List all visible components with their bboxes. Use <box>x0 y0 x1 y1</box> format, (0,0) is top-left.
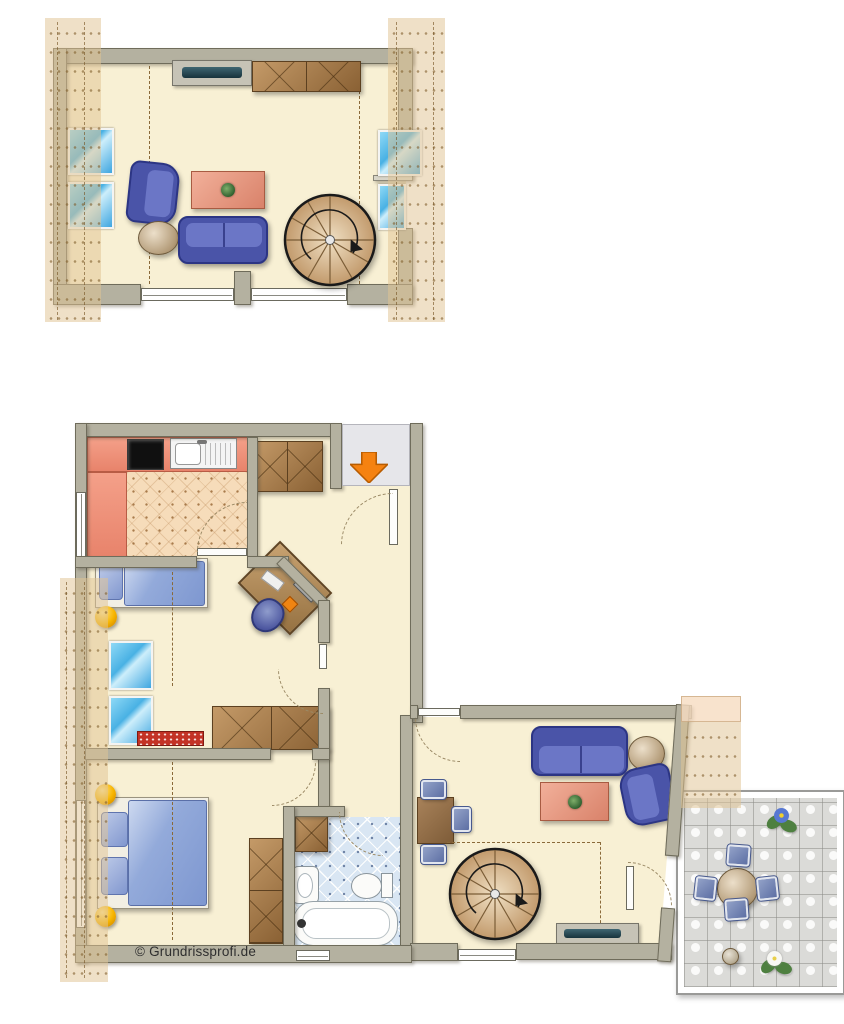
sink-bowl <box>175 443 201 465</box>
cabinet-top <box>296 815 327 851</box>
childrens-door-leaf <box>319 644 327 669</box>
terrace-chair <box>724 898 748 921</box>
seat-cushion <box>626 773 661 821</box>
roof-band-top <box>681 696 741 722</box>
terrace-chair <box>756 876 779 901</box>
wall-segment <box>657 907 675 962</box>
wall-corridor-east <box>400 715 413 955</box>
wall-bedroom-top <box>85 748 271 760</box>
radiator <box>137 731 204 746</box>
living-window-band <box>458 949 516 961</box>
sink-drainer <box>205 443 233 465</box>
kitchen-sink <box>170 438 237 469</box>
blanket <box>128 800 207 906</box>
wall-bath-left <box>283 806 295 956</box>
seat-cushion <box>144 169 175 217</box>
living-door-leaf <box>418 708 460 716</box>
chest-section <box>253 62 307 91</box>
attic-chimney <box>234 271 251 305</box>
wardrobe-section <box>253 442 288 491</box>
wall-living-top-b <box>460 705 692 719</box>
chest-section <box>307 62 360 91</box>
wall-right-outer-upper <box>410 423 423 723</box>
roof-hatch-line <box>396 22 397 320</box>
dining-chair <box>421 845 446 864</box>
toilet-bowl <box>351 873 382 899</box>
spiral-staircase <box>446 845 544 943</box>
terrace-chair <box>726 844 750 867</box>
plant-icon <box>568 795 582 809</box>
skylight-window <box>109 641 153 690</box>
wall-childrens-right <box>318 600 330 643</box>
round-side-table <box>138 221 179 255</box>
bath-window <box>296 950 330 961</box>
plant-pot <box>722 948 739 965</box>
roof-hatch-line <box>66 582 67 978</box>
watermark: © Grundrissprofi.de <box>135 944 256 959</box>
roof-hatch-line <box>433 22 434 320</box>
wall-kitchen-right <box>247 437 258 558</box>
wall-living-bottom-b <box>516 943 672 960</box>
wall-bedroom-top-right <box>312 748 330 760</box>
living-sofa <box>531 726 628 776</box>
roof-hatch-left <box>45 18 101 322</box>
basin-bowl <box>297 873 313 898</box>
wall-kitchen-bottom <box>75 556 197 568</box>
dining-table <box>417 797 454 844</box>
tub-tap-icon <box>297 919 306 928</box>
kitchen-counter-left <box>87 472 127 558</box>
flower-blue <box>766 804 800 838</box>
spiral-staircase <box>281 191 379 289</box>
bloom-icon <box>767 951 782 966</box>
roof-hatch-line <box>84 22 85 320</box>
attic-sofa <box>178 216 268 264</box>
tub-inner <box>302 908 390 939</box>
terrace-chair <box>694 876 717 901</box>
cooktop <box>127 439 164 470</box>
wall-living-bottom-a <box>410 943 458 961</box>
attic-armchair <box>125 160 181 227</box>
bath-cabinet <box>295 814 328 852</box>
bedroom-wardrobe <box>249 838 283 944</box>
keyboard-icon <box>261 570 285 592</box>
flower-white <box>760 946 794 980</box>
knee-wall-line <box>172 572 173 686</box>
washbasin <box>292 866 319 904</box>
kitchen-window <box>76 492 86 558</box>
knee-wall-line <box>172 762 173 940</box>
floor-plan-canvas: © Grundrissprofi.de <box>0 0 844 1024</box>
dining-chair <box>452 807 471 832</box>
toilet-tank <box>381 873 393 898</box>
ceiling-opening-line <box>447 842 600 843</box>
roof-hatch-terrace <box>681 722 741 808</box>
wardrobe-section <box>288 442 322 491</box>
wardrobe-section <box>250 891 282 943</box>
wall-alcove-left <box>330 423 342 489</box>
roof-hatch-line <box>57 22 58 320</box>
bloom-icon <box>774 808 789 823</box>
wardrobe-section <box>250 839 282 891</box>
cushion-divider <box>223 223 225 247</box>
faucet-icon <box>197 440 207 444</box>
entry-arrow-icon <box>350 452 388 483</box>
ceiling-opening-line <box>600 842 601 928</box>
wardrobe-section <box>213 707 272 749</box>
bathtub <box>293 901 398 946</box>
tv-icon <box>564 929 621 938</box>
tv-icon <box>182 67 242 78</box>
attic-window-band <box>251 288 347 301</box>
attic-window-band <box>141 288 234 301</box>
plant-icon <box>221 183 235 197</box>
wooden-chest <box>252 61 361 92</box>
dining-chair <box>421 780 446 799</box>
wall-living-top-a <box>410 705 418 719</box>
roof-hatch-line <box>84 582 85 978</box>
cushion-divider <box>580 746 582 773</box>
hall-wardrobe <box>252 441 323 492</box>
wall-top-left-wing <box>75 423 333 437</box>
